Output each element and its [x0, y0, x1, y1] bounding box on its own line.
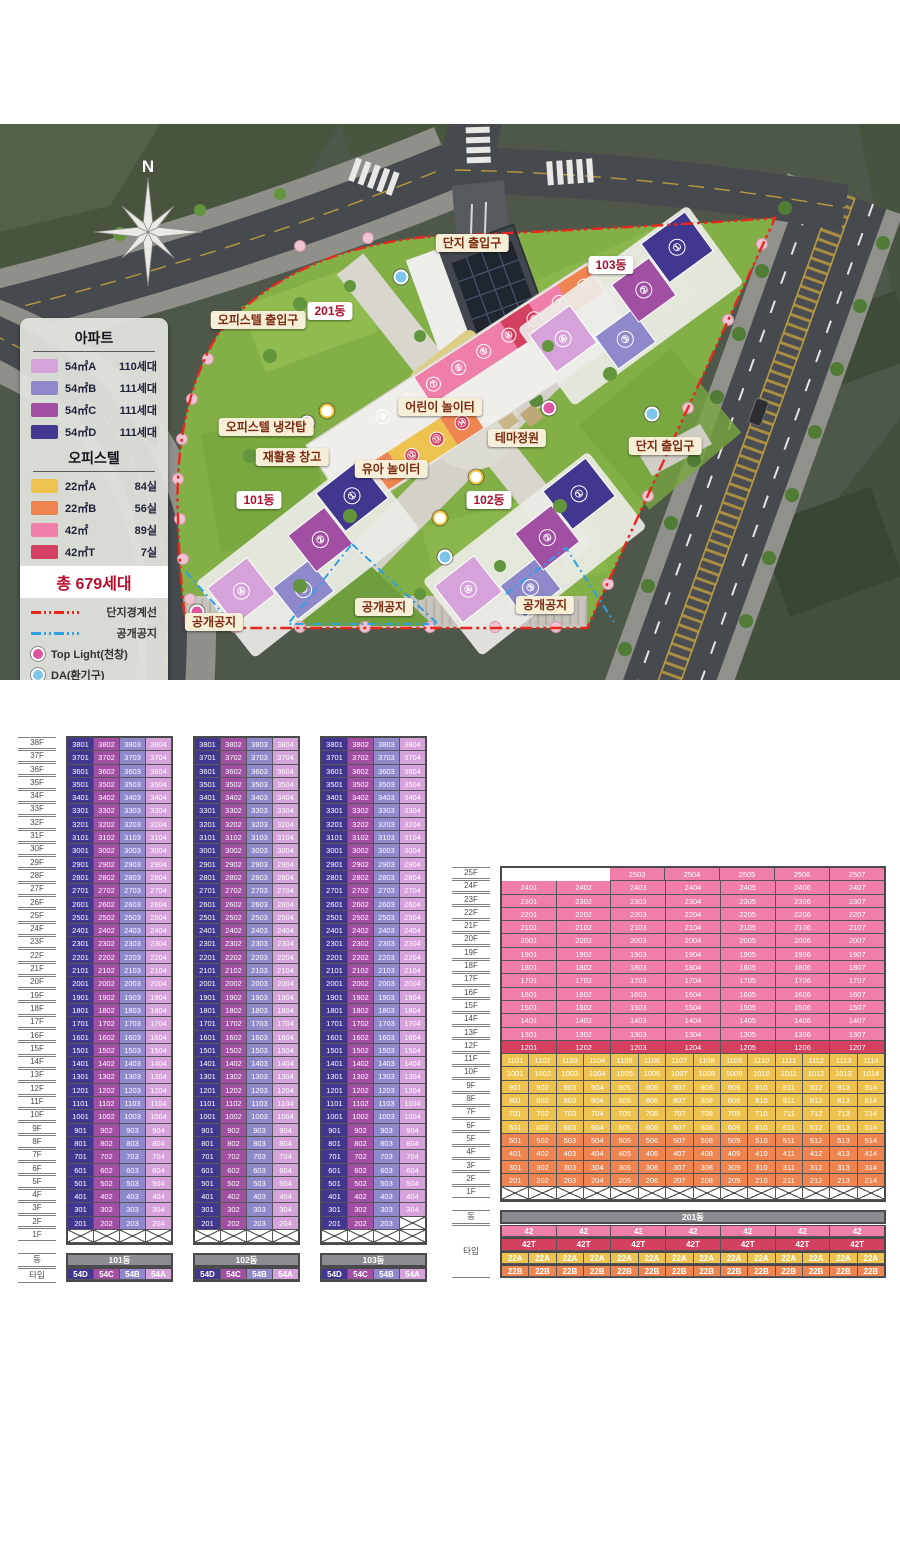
no-unit-cell	[502, 1187, 529, 1200]
unit-cell: 1303	[247, 1070, 273, 1083]
type-cell: 22B	[502, 1266, 529, 1277]
floor-row: 1401140214031404	[322, 1057, 425, 1070]
unit-cell: 1702	[221, 1017, 247, 1030]
unit-cell: 2001	[195, 977, 221, 990]
unit-cell: 1304	[400, 1070, 425, 1083]
unit-cell: 808	[694, 1094, 721, 1107]
floor-label: 7F	[452, 1105, 490, 1118]
unit-cell: 1503	[247, 1044, 273, 1057]
unit-cell: 403	[374, 1190, 400, 1203]
type-cell: 22A	[557, 1253, 584, 1264]
unit-cell: 314	[858, 1161, 884, 1174]
unit-cell: 909	[721, 1081, 748, 1094]
unit-cell: 3704	[273, 751, 298, 764]
type-cell: 22B	[803, 1266, 830, 1277]
unit-cell: 710	[748, 1107, 775, 1120]
unit-cell: 2301	[195, 937, 221, 950]
legend-swatch	[31, 545, 58, 559]
unit-cell: 401	[68, 1190, 94, 1203]
floor-label: 8F	[452, 1092, 490, 1105]
unit-cell: 1604	[666, 988, 721, 1001]
unit-cell: 803	[247, 1137, 273, 1150]
unit-cell: 1904	[666, 948, 721, 961]
da-icon	[438, 550, 453, 565]
unit-cell: 2403	[374, 924, 400, 937]
unit-cell: 2703	[120, 884, 146, 897]
unit-cell: 402	[94, 1190, 120, 1203]
unit-cell: 3701	[322, 751, 348, 764]
unit-cell: 502	[348, 1177, 374, 1190]
floor-label: 18F	[452, 959, 490, 972]
unit-cell: 301	[195, 1203, 221, 1216]
floor-row: 1301130213031304	[195, 1070, 298, 1083]
unit-cell: 201	[502, 1174, 529, 1187]
type-cell: 22B	[666, 1266, 693, 1277]
unit-cell: 401	[502, 1147, 529, 1160]
unit-cell: 804	[146, 1137, 171, 1150]
unit-cell: 513	[830, 1134, 857, 1147]
unit-cell: 313	[830, 1161, 857, 1174]
unit-cell: 3802	[221, 738, 247, 751]
floor-row: 1701170217031704	[68, 1017, 171, 1030]
type-cell: 42T	[830, 1239, 884, 1250]
floor-row: 4014024034044054064074084094104114124134…	[502, 1147, 884, 1160]
type-cell: 42	[557, 1226, 612, 1237]
unit-cell: 1012	[803, 1067, 830, 1080]
unit-cell: 202	[94, 1217, 120, 1230]
unit-cell: 303	[557, 1161, 584, 1174]
no-unit-cell	[557, 1187, 584, 1200]
unit-cell: 3603	[247, 765, 273, 778]
floor-label: 10F	[452, 1065, 490, 1078]
floor-row: 1201120212031204	[68, 1084, 171, 1097]
unit-cell: 1801	[502, 961, 557, 974]
unit-cell: 3802	[94, 738, 120, 751]
unit-cell: 404	[273, 1190, 298, 1203]
unit-cell: 2801	[68, 871, 94, 884]
unit-cell: 2204	[146, 951, 171, 964]
unit-cell: 3102	[221, 831, 247, 844]
unit-cell: 2602	[348, 898, 374, 911]
unit-cell: 1602	[557, 988, 612, 1001]
unit-cell: 708	[694, 1107, 721, 1120]
unit-cell: 1105	[611, 1054, 638, 1067]
legend-swatch	[31, 403, 58, 417]
unit-cell: 1003	[557, 1067, 584, 1080]
unit-cell: 3104	[273, 831, 298, 844]
unit-cell: 2007	[830, 934, 884, 947]
unit-cell: 3702	[348, 751, 374, 764]
unit-cell: 1604	[400, 1031, 425, 1044]
unit-cell: 2502	[94, 911, 120, 924]
unit-cell: 3704	[146, 751, 171, 764]
unit-cell: 1603	[120, 1031, 146, 1044]
unit-cell: 1203	[120, 1084, 146, 1097]
floor-row: 3501350235033504	[195, 778, 298, 791]
type-cell: 22A	[830, 1253, 857, 1264]
unit-cell: 804	[273, 1137, 298, 1150]
type-cell: 22A	[694, 1253, 721, 1264]
unit-cell: 1903	[374, 991, 400, 1004]
unit-cell: 701	[68, 1150, 94, 1163]
floor-label: 22F	[18, 949, 56, 962]
type-cell: 22A	[858, 1253, 884, 1264]
unit-cell: 1803	[611, 961, 666, 974]
floor-label: 9F	[452, 1079, 490, 1092]
tower-type-row: 42424242424242	[500, 1225, 886, 1238]
unit-cell: 1401	[68, 1057, 94, 1070]
unit-cell: 604	[400, 1164, 425, 1177]
unit-cell: 1406	[776, 1014, 831, 1027]
unit-cell: 702	[221, 1150, 247, 1163]
unit-cell: 3204	[146, 818, 171, 831]
unit-cell: 1404	[146, 1057, 171, 1070]
unit-cell: 1103	[557, 1054, 584, 1067]
unit-cell: 2402	[94, 924, 120, 937]
unit-cell: 1013	[830, 1067, 857, 1080]
unit-cell: 1003	[120, 1110, 146, 1123]
floor-row: 3201320232033204	[322, 818, 425, 831]
unit-cell: 1504	[273, 1044, 298, 1057]
unit-cell: 2903	[247, 858, 273, 871]
unit-cell: 3404	[146, 791, 171, 804]
floor-row: 1701170217031704	[195, 1017, 298, 1030]
floor-label: 23F	[18, 935, 56, 948]
unit-cell: 2901	[68, 858, 94, 871]
unit-cell: 3202	[348, 818, 374, 831]
floor-row: 301302303304	[68, 1203, 171, 1216]
unit-cell: 2702	[221, 884, 247, 897]
no-unit-cell	[322, 1230, 348, 1243]
floor-label: 17F	[18, 1015, 56, 1028]
unit-cell: 1111	[776, 1054, 803, 1067]
unit-cell: 2203	[247, 951, 273, 964]
unit-cell: 1301	[502, 1028, 557, 1041]
unit-cell: 1004	[584, 1067, 611, 1080]
unit-cell: 1804	[146, 1004, 171, 1017]
type-cell: 22A	[666, 1253, 693, 1264]
unit-cell: 703	[374, 1150, 400, 1163]
unit-cell: 3303	[120, 804, 146, 817]
unit-cell: 1103	[120, 1097, 146, 1110]
legend-item-count: 7실	[141, 544, 157, 560]
unit-cell: 303	[247, 1203, 273, 1216]
unit-cell: 2603	[247, 898, 273, 911]
unit-cell: 2301	[68, 937, 94, 950]
unit-cell: 2403	[611, 881, 666, 894]
type-cell: 54D	[195, 1269, 221, 1280]
unit-cell: 501	[195, 1177, 221, 1190]
unit-cell: 405	[611, 1147, 638, 1160]
unit-cell: 1307	[830, 1028, 884, 1041]
unit-cell: 2601	[195, 898, 221, 911]
unit-cell: 2403	[247, 924, 273, 937]
unit-cell: 2101	[322, 964, 348, 977]
unit-cell: 2101	[502, 921, 557, 934]
tower-name-bar: 103동	[320, 1253, 427, 1267]
floor-row: 1701170217031704	[322, 1017, 425, 1030]
unit-cell: 1806	[776, 961, 831, 974]
floor-row: 3401340234033404	[68, 791, 171, 804]
floor-row: 901902903904	[322, 1124, 425, 1137]
unit-cell: 2003	[374, 977, 400, 990]
ground-floor-row	[195, 1230, 298, 1243]
unit-cell: 3404	[400, 791, 425, 804]
tower-type-row: 42T42T42T42T42T42T42T	[500, 1238, 886, 1251]
floor-label: 15F	[452, 999, 490, 1012]
type-cell: 22A	[529, 1253, 556, 1264]
unit-cell: 203	[374, 1217, 400, 1230]
unit-cell: 2902	[348, 858, 374, 871]
unit-cell: 2406	[776, 881, 831, 894]
unit-cell: 1402	[221, 1057, 247, 1070]
unit-cell: 2304	[666, 895, 721, 908]
no-unit-cell	[748, 1187, 775, 1200]
unit-cell: 2701	[195, 884, 221, 897]
unit-cell: 3702	[221, 751, 247, 764]
unit-cell: 701	[195, 1150, 221, 1163]
unit-cell: 2405	[721, 881, 776, 894]
floor-row: 1401140214031404	[195, 1057, 298, 1070]
floor-label: 27F	[18, 882, 56, 895]
unit-cell: 2701	[68, 884, 94, 897]
no-unit-cell	[195, 1230, 221, 1243]
unit-cell: 2904	[146, 858, 171, 871]
type-cell: 54A	[273, 1269, 298, 1280]
unit-cell: 1503	[611, 1001, 666, 1014]
unit-cell: 3403	[120, 791, 146, 804]
unit-cell: 3203	[120, 818, 146, 831]
unit-cell: 914	[858, 1081, 884, 1094]
unit-cell: 1504	[400, 1044, 425, 1057]
unit-cell: 801	[195, 1137, 221, 1150]
unit-cell: 907	[666, 1081, 693, 1094]
legend-item-label: 54㎡C	[65, 402, 120, 418]
unit-cell: 1901	[322, 991, 348, 1004]
unit-cell: 2106	[776, 921, 831, 934]
unit-cell: 403	[557, 1147, 584, 1160]
floor-row: 301302303304	[195, 1203, 298, 1216]
floor-label: 11F	[18, 1095, 56, 1108]
unit-cell: 1901	[68, 991, 94, 1004]
floor-label: 24F	[452, 879, 490, 892]
legend-line-label: 단지경계선	[106, 604, 157, 620]
tower-type-row: 54D54C54B54A	[66, 1267, 173, 1282]
floor-row: 2401240224032404	[68, 924, 171, 937]
unit-cell: 704	[146, 1150, 171, 1163]
unit-cell: 902	[94, 1124, 120, 1137]
unit-cell: 2006	[776, 934, 831, 947]
no-unit-cell	[348, 1230, 374, 1243]
floor-row: 2101210221032104	[195, 964, 298, 977]
unit-cell: 2502	[348, 911, 374, 924]
unit-cell: 302	[221, 1203, 247, 1216]
type-cell: 22B	[611, 1266, 638, 1277]
da-icon	[394, 270, 409, 285]
floor-row: 1901190219031904	[68, 991, 171, 1004]
unit-cell: 2003	[611, 934, 666, 947]
unit-cell: 3502	[94, 778, 120, 791]
unit-cell: 2803	[247, 871, 273, 884]
floor-row: 1901190219031904	[322, 991, 425, 1004]
unit-cell: 403	[247, 1190, 273, 1203]
map-label: 오피스텔 냉각탑	[219, 418, 314, 436]
unit-cell: 2801	[195, 871, 221, 884]
unit-cell: 2201	[502, 908, 557, 921]
unit-cell: 3103	[120, 831, 146, 844]
unit-cell: 1601	[322, 1031, 348, 1044]
floor-label: 4F	[452, 1145, 490, 1158]
unit-cell: 1903	[611, 948, 666, 961]
legend-swatch	[31, 425, 58, 439]
unit-cell: 1504	[146, 1044, 171, 1057]
unit-cell: 1706	[776, 974, 831, 987]
floor-row: 2401240224032404	[195, 924, 298, 937]
unit-cell: 3502	[348, 778, 374, 791]
unit-cell: 509	[721, 1134, 748, 1147]
unit-cell: 1303	[374, 1070, 400, 1083]
unit-cell: 402	[348, 1190, 374, 1203]
floor-label: 13F	[18, 1068, 56, 1081]
floor-row: 8018028038048058068078088098108118128138…	[502, 1094, 884, 1107]
unit-cell: 607	[666, 1121, 693, 1134]
unit-cell: 612	[803, 1121, 830, 1134]
unit-cell: 2802	[348, 871, 374, 884]
floor-row: 2012022032042052062072082092102112122132…	[502, 1174, 884, 1187]
unit-cell: 1001	[68, 1110, 94, 1123]
unit-cell: 802	[221, 1137, 247, 1150]
unit-cell: 1101	[502, 1054, 529, 1067]
unit-cell: 2903	[120, 858, 146, 871]
unit-cell: 408	[694, 1147, 721, 1160]
unit-cell: 910	[748, 1081, 775, 1094]
unit-cell: 3303	[247, 804, 273, 817]
unit-cell: 204	[273, 1217, 298, 1230]
unit-cell: 1109	[721, 1054, 748, 1067]
legend-item: 54㎡B111세대	[31, 380, 157, 396]
unit-cell: 1702	[348, 1017, 374, 1030]
legend-item: 22㎡B56실	[31, 500, 157, 516]
unit-cell: 3501	[195, 778, 221, 791]
unit-cell: 202	[348, 1217, 374, 1230]
unit-cell: 1104	[146, 1097, 171, 1110]
unit-cell: 2804	[146, 871, 171, 884]
unit-cell: 302	[529, 1161, 556, 1174]
unit-cell: 3003	[247, 844, 273, 857]
ground-floor-row	[502, 1187, 884, 1200]
unit-cell: 704	[400, 1150, 425, 1163]
floor-row: 1101110211031104	[68, 1097, 171, 1110]
unit-cell: 705	[611, 1107, 638, 1120]
floor-row: 2701270227032704	[68, 884, 171, 897]
unit-cell: 2004	[666, 934, 721, 947]
unit-cell: 1501	[68, 1044, 94, 1057]
floor-row: 2401240224032404240524062407	[502, 881, 884, 894]
unit-cell: 2202	[221, 951, 247, 964]
unit-cell: 804	[400, 1137, 425, 1150]
unit-cell: 3401	[322, 791, 348, 804]
unit-cell: 2503	[374, 911, 400, 924]
map-label: 단지 출입구	[629, 437, 702, 455]
unit-cell: 1304	[666, 1028, 721, 1041]
no-unit-cell	[120, 1230, 146, 1243]
unit-cell: 1802	[348, 1004, 374, 1017]
floor-row: 3101310231033104	[195, 831, 298, 844]
unit-cell: 3202	[221, 818, 247, 831]
unit-cell: 2402	[348, 924, 374, 937]
floor-row: 3001300230033004	[195, 844, 298, 857]
unit-cell: 3501	[322, 778, 348, 791]
floor-row: 401402403404	[322, 1190, 425, 1203]
unit-cell: 1205	[721, 1041, 776, 1054]
unit-cell: 2002	[94, 977, 120, 990]
unit-cell: 2002	[557, 934, 612, 947]
unit-cell: 2501	[68, 911, 94, 924]
unit-cell: 802	[529, 1094, 556, 1107]
unit-cell: 2903	[374, 858, 400, 871]
unit-cell: 1110	[748, 1054, 775, 1067]
unit-cell: 1001	[195, 1110, 221, 1123]
legend-item-count: 110세대	[119, 358, 157, 374]
floor-row: 1201120212031204	[322, 1084, 425, 1097]
unit-cell: 1401	[195, 1057, 221, 1070]
unit-cell: 810	[748, 1094, 775, 1107]
unit-cell: 2402	[557, 881, 612, 894]
type-cell: 22A	[502, 1253, 529, 1264]
floor-row: 2301230223032304	[322, 937, 425, 950]
unit-cell: 206	[639, 1174, 666, 1187]
unit-cell: 409	[721, 1147, 748, 1160]
unit-cell: 1204	[146, 1084, 171, 1097]
floor-row: 3101310231033104	[322, 831, 425, 844]
unit-cell: 3701	[195, 751, 221, 764]
unit-cell: 2102	[557, 921, 612, 934]
unit-cell: 1802	[557, 961, 612, 974]
unit-cell: 1403	[374, 1057, 400, 1070]
unit-cell: 1802	[94, 1004, 120, 1017]
unit-cell: 2204	[273, 951, 298, 964]
type-cell: 42	[611, 1226, 666, 1237]
unit-cell: 712	[803, 1107, 830, 1120]
floor-row: 3501350235033504	[68, 778, 171, 791]
unit-cell: 601	[195, 1164, 221, 1177]
unit-cell: 510	[748, 1134, 775, 1147]
floor-row: 1801180218031804	[322, 1004, 425, 1017]
unit-cell: 203	[557, 1174, 584, 1187]
unit-cell: 807	[666, 1094, 693, 1107]
floor-row: 2001200220032004	[68, 977, 171, 990]
unit-cell: 2201	[68, 951, 94, 964]
unit-cell: 1606	[776, 988, 831, 1001]
unit-cell: 3302	[94, 804, 120, 817]
unit-cell: 603	[557, 1121, 584, 1134]
unit-cell: 3801	[68, 738, 94, 751]
unit-cell: 1503	[374, 1044, 400, 1057]
unit-cell: 801	[68, 1137, 94, 1150]
floor-row: 2801280228032804	[195, 871, 298, 884]
floor-row: 1801180218031804	[195, 1004, 298, 1017]
unit-cell: 501	[502, 1134, 529, 1147]
unit-cell: 2901	[195, 858, 221, 871]
trash-icon	[469, 470, 484, 485]
unit-cell: 901	[502, 1081, 529, 1094]
unit-cell: 706	[639, 1107, 666, 1120]
floor-row: 2601260226032604	[195, 898, 298, 911]
unit-cell: 2703	[374, 884, 400, 897]
unit-cell: 2103	[247, 964, 273, 977]
unit-cell: 3401	[68, 791, 94, 804]
unit-cell: 414	[858, 1147, 884, 1160]
